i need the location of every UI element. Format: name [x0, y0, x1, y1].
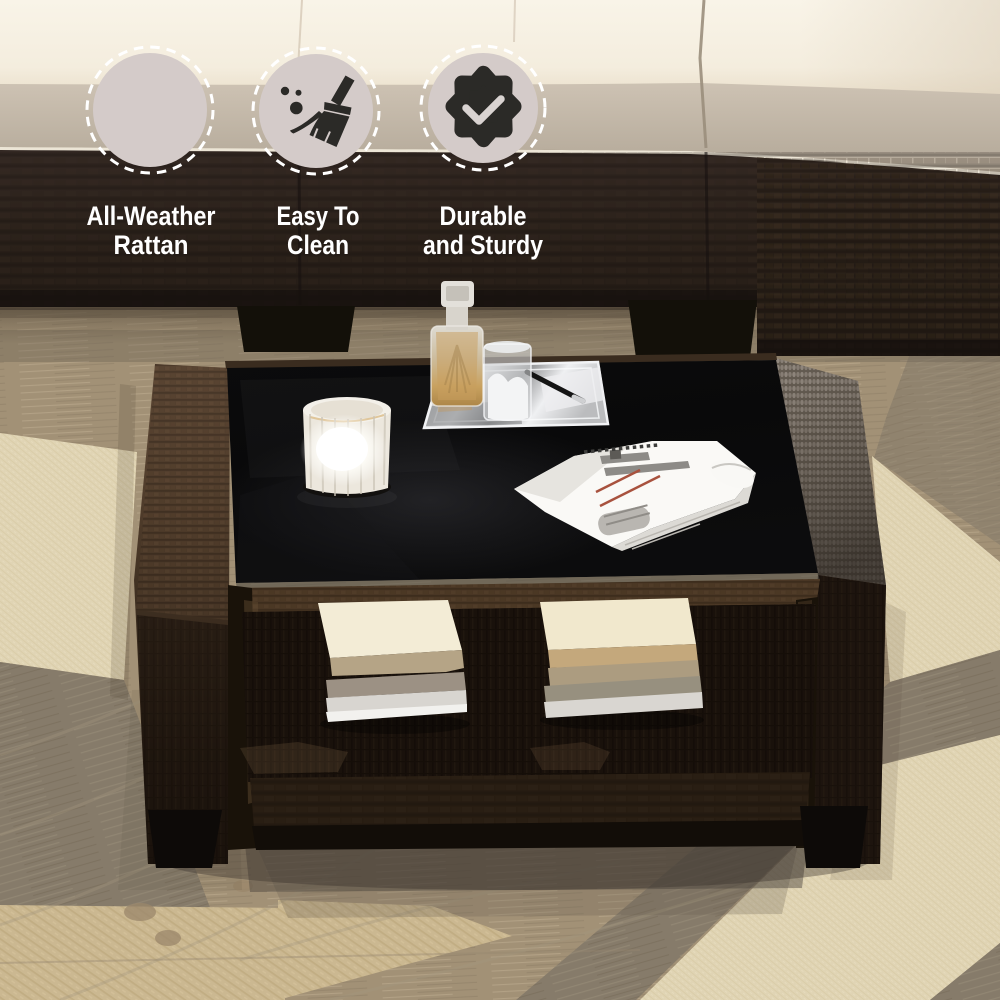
svg-text:All-Weather: All-Weather: [87, 201, 216, 231]
svg-text:Easy To: Easy To: [277, 201, 360, 231]
svg-text:Durable: Durable: [440, 201, 527, 231]
svg-text:Rattan: Rattan: [114, 230, 189, 260]
svg-text:Clean: Clean: [287, 230, 349, 260]
svg-text:and Sturdy: and Sturdy: [423, 230, 543, 260]
